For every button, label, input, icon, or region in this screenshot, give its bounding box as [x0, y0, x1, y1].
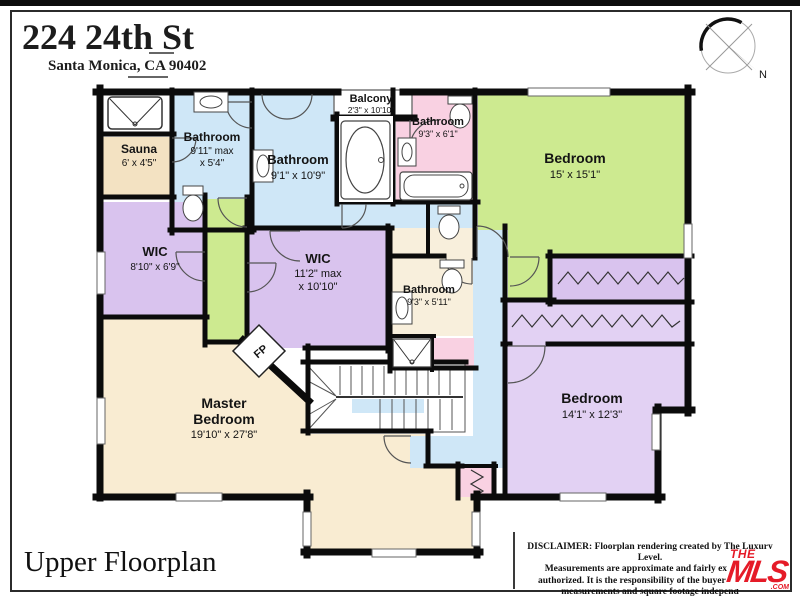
dim2-bath-top-left: x 5'4"	[200, 158, 225, 169]
sink-icon	[194, 92, 228, 112]
dim-bath-middle: 9'1" x 10'9"	[271, 170, 325, 182]
dim-wic-left: 8'10" x 6'9"	[130, 262, 180, 273]
label-master-1: Master	[201, 395, 247, 411]
dim-sauna: 6' x 4'5"	[122, 158, 157, 169]
label-bath-middle: Bathroom	[267, 152, 328, 167]
compass-north-label: N	[759, 69, 767, 81]
dim-master: 19'10" x 27'8"	[191, 429, 258, 441]
label-bath-pink: Bathroom	[412, 116, 464, 128]
bathtub-icon	[339, 116, 393, 202]
label-bath-lower: Bathroom	[403, 284, 455, 296]
dim-bedroom-green: 15' x 15'1"	[550, 169, 600, 181]
dim2-wic-center: x 10'10"	[298, 281, 337, 293]
closet-strip-1	[552, 256, 688, 302]
label-sauna: Sauna	[121, 142, 157, 156]
label-master-2: Bedroom	[193, 411, 254, 427]
dim-bath-lower: 9'3" x 5'11"	[407, 297, 451, 307]
mls-logo: THE MLS .COM	[727, 549, 789, 589]
compass-icon: N	[701, 19, 767, 81]
bathtub-icon	[400, 172, 472, 200]
floorplan-drawing: Bathroom 9'11" max x 5'4" Sauna 6' x 4'5…	[0, 0, 800, 600]
dim-balcony: 2'3" x 10'10"	[348, 105, 395, 115]
label-wic-center: WIC	[305, 251, 331, 266]
dim-bath-top-left: 9'11" max	[190, 146, 233, 157]
dim-wic-center: 11'2" max	[294, 268, 342, 280]
floorplan-page: 224 24th St Santa Monica, CA 90402	[0, 0, 800, 600]
label-balcony: Balcony	[350, 93, 394, 105]
label-bedroom-purple: Bedroom	[561, 390, 622, 406]
shower-pan-icon	[108, 97, 162, 129]
label-bath-top-left: Bathroom	[184, 130, 241, 144]
label-wic-left: WIC	[142, 244, 168, 259]
footer-divider	[513, 532, 515, 589]
hallway-blue	[473, 228, 505, 468]
hallway-green-strip	[207, 199, 247, 343]
shower-stall-icon	[393, 339, 431, 367]
toilet-icon	[438, 206, 460, 239]
dim-bath-pink: 9'3" x 6'1"	[418, 129, 457, 139]
sink-icon	[398, 138, 416, 166]
stairs	[308, 364, 465, 432]
toilet-icon	[183, 186, 203, 221]
mls-logo-mls: MLS	[725, 559, 791, 585]
closet-strip-2	[505, 302, 688, 344]
label-bedroom-green: Bedroom	[544, 150, 605, 166]
floorplan-title: Upper Floorplan	[24, 546, 217, 579]
dim-bedroom-purple: 14'1" x 12'3"	[562, 409, 622, 421]
